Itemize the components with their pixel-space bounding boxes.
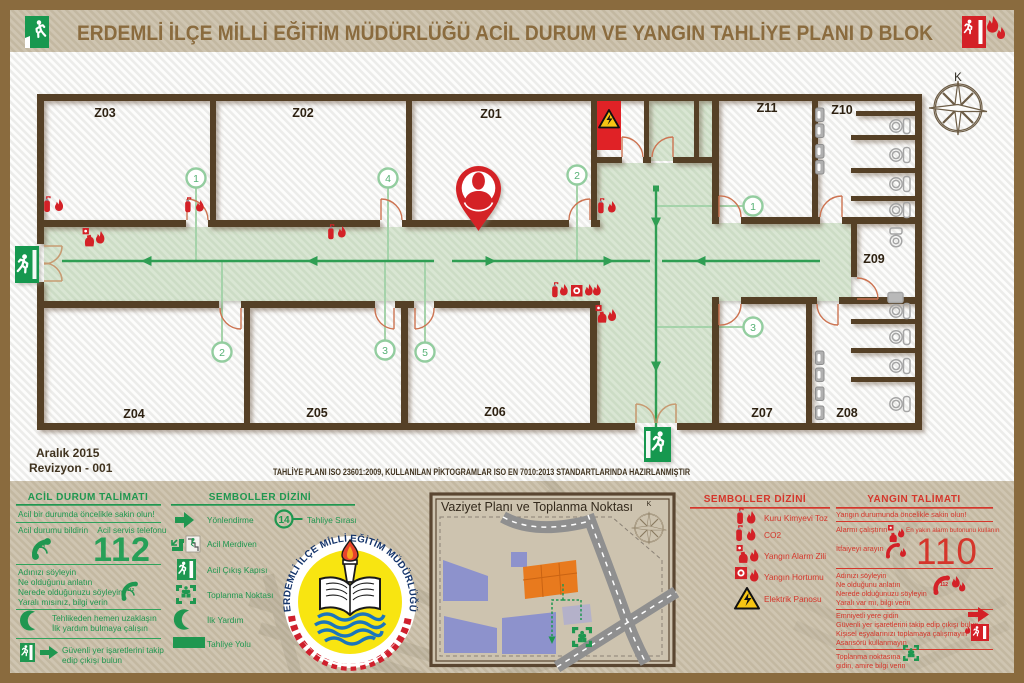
svg-text:SEMBOLLER DİZİNİ: SEMBOLLER DİZİNİ: [704, 492, 806, 505]
svg-text:110: 110: [916, 531, 978, 572]
svg-text:1: 1: [193, 173, 199, 185]
svg-text:Z03: Z03: [94, 106, 116, 120]
svg-text:Z05: Z05: [306, 406, 328, 420]
svg-text:Adınızı söyleyin: Adınızı söyleyin: [18, 567, 76, 577]
svg-text:Z04: Z04: [123, 407, 145, 421]
svg-text:Adınızı söyleyin: Adınızı söyleyin: [836, 571, 886, 580]
svg-text:Acil bir durumda öncelikle sak: Acil bir durumda öncelikle sakin olun!: [18, 509, 155, 519]
svg-text:YANGIN TALİMATI: YANGIN TALİMATI: [867, 492, 960, 505]
svg-text:Vaziyet Planı ve Toplanma Nokt: Vaziyet Planı ve Toplanma Noktası: [441, 500, 633, 514]
svg-text:Emniyetli yere gidin: Emniyetli yere gidin: [836, 611, 898, 620]
svg-text:Yangın Alarm Zili: Yangın Alarm Zili: [764, 551, 826, 561]
svg-text:Asansörü kullanmayın: Asansörü kullanmayın: [836, 638, 907, 647]
svg-text:SEMBOLLER DİZİNİ: SEMBOLLER DİZİNİ: [209, 490, 311, 503]
svg-text:İlk Yardım: İlk Yardım: [207, 615, 244, 625]
svg-text:Yangın Hortumu: Yangın Hortumu: [764, 572, 824, 582]
svg-text:edip çıkışı bulun: edip çıkışı bulun: [62, 655, 122, 665]
svg-text:3: 3: [750, 322, 756, 334]
svg-text:112: 112: [127, 587, 135, 592]
svg-text:Acil Merdiven: Acil Merdiven: [207, 539, 257, 549]
svg-text:Güvenli yer işaretlerini takip: Güvenli yer işaretlerini takip: [62, 645, 164, 655]
svg-text:Yaralı var mı, bilgi verin: Yaralı var mı, bilgi verin: [836, 598, 911, 607]
svg-text:112: 112: [93, 531, 151, 569]
svg-text:Tehlikeden hemen uzaklaşın: Tehlikeden hemen uzaklaşın: [52, 613, 157, 623]
svg-text:1: 1: [750, 201, 756, 213]
svg-text:Kuru Kimyevi Toz: Kuru Kimyevi Toz: [764, 513, 828, 523]
svg-text:Z10: Z10: [831, 103, 853, 117]
svg-text:Elektrik Panosu: Elektrik Panosu: [764, 594, 822, 604]
svg-text:CO2: CO2: [764, 530, 781, 540]
svg-text:TAHLİYE PLANI ISO 23601:2009,: TAHLİYE PLANI ISO 23601:2009, KULLANILAN…: [273, 467, 690, 477]
svg-text:Yangın durumunda öncelikle sak: Yangın durumunda öncelikle sakin olun!: [836, 510, 967, 519]
svg-text:112: 112: [940, 582, 948, 588]
svg-text:Toplanma noktasına: Toplanma noktasına: [836, 652, 900, 661]
svg-text:5: 5: [422, 347, 428, 359]
svg-text:Tahliye Yolu: Tahliye Yolu: [207, 639, 251, 649]
svg-text:K: K: [954, 72, 962, 84]
svg-text:ACİL DURUM TALİMATI: ACİL DURUM TALİMATI: [28, 490, 149, 503]
svg-text:4: 4: [385, 173, 391, 185]
svg-text:2: 2: [219, 347, 225, 359]
svg-text:Aralık 2015: Aralık 2015: [36, 446, 100, 460]
svg-text:Z11: Z11: [757, 101, 778, 115]
svg-text:112: 112: [38, 544, 46, 549]
svg-text:İtfaiyeyi arayın: İtfaiyeyi arayın: [836, 544, 884, 553]
svg-text:Z02: Z02: [292, 106, 314, 120]
svg-text:Kişisel eşyalarınızı toplamaya: Kişisel eşyalarınızı toplamaya çalışmayı…: [836, 629, 967, 638]
svg-text:Yönlendirme: Yönlendirme: [207, 515, 254, 525]
svg-text:Z07: Z07: [751, 406, 773, 420]
svg-text:14: 14: [278, 515, 290, 526]
svg-text:2: 2: [574, 170, 580, 182]
svg-text:Ne olduğunu anlatın: Ne olduğunu anlatın: [18, 577, 93, 587]
svg-text:ERDEMLİ İLÇE MİLLİ EĞİTİM MÜDÜ: ERDEMLİ İLÇE MİLLİ EĞİTİM MÜDÜRLÜĞÜ ACİL…: [77, 21, 933, 45]
svg-text:Z06: Z06: [484, 405, 506, 419]
svg-text:Nerede olduğunuzu söyleyin: Nerede olduğunuzu söyleyin: [836, 589, 927, 598]
svg-text:gidin, amire bilgi verin: gidin, amire bilgi verin: [836, 661, 906, 670]
svg-text:Toplanma Noktası: Toplanma Noktası: [207, 590, 273, 600]
svg-text:İlk yardım bulmaya çalışın: İlk yardım bulmaya çalışın: [52, 623, 148, 633]
svg-text:Nerede olduğunuzu söyleyin: Nerede olduğunuzu söyleyin: [18, 587, 123, 597]
svg-text:3: 3: [382, 345, 388, 357]
svg-text:Z01: Z01: [480, 107, 502, 121]
svg-text:Alarmı çalıştırın: Alarmı çalıştırın: [836, 525, 887, 534]
svg-text:Revizyon - 001: Revizyon - 001: [29, 461, 113, 475]
svg-text:Acil Çıkış Kapısı: Acil Çıkış Kapısı: [207, 565, 267, 575]
svg-text:Ne olduğunu anlatın: Ne olduğunu anlatın: [836, 580, 900, 589]
svg-text:Güvenli yer işaretlerini takip: Güvenli yer işaretlerini takip edip çıkı…: [836, 620, 978, 629]
svg-text:K: K: [647, 501, 652, 508]
svg-text:Yaralı mısınız, bilgi verin: Yaralı mısınız, bilgi verin: [18, 597, 108, 607]
svg-text:Tahliye Sırası: Tahliye Sırası: [307, 515, 357, 525]
svg-text:Z09: Z09: [863, 252, 885, 266]
svg-text:Z08: Z08: [836, 406, 858, 420]
